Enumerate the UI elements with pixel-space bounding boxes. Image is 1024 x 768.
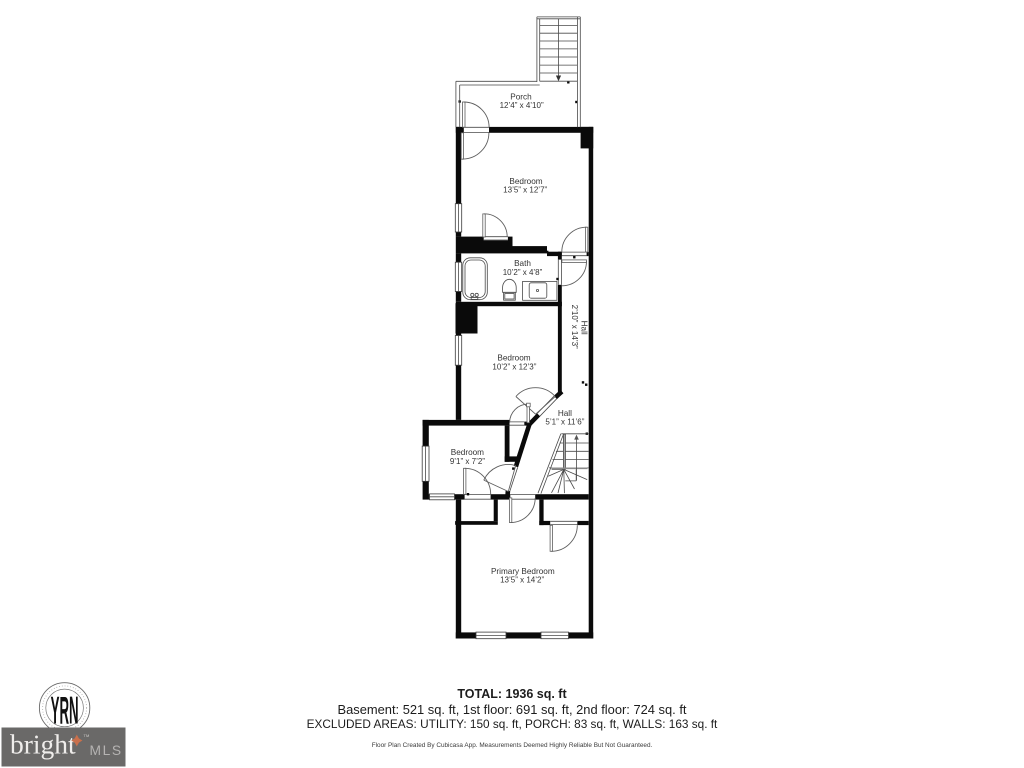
svg-text:bright: bright — [10, 729, 76, 760]
svg-text:MLS: MLS — [90, 743, 123, 758]
svg-text:Basement: 521 sq. ft, 1st floo: Basement: 521 sq. ft, 1st floor: 691 sq.… — [338, 702, 687, 717]
svg-text:TOTAL: 1936 sq. ft: TOTAL: 1936 sq. ft — [457, 687, 567, 701]
svg-text:Floor Plan Created By Cubicasa: Floor Plan Created By Cubicasa App. Meas… — [372, 742, 653, 749]
svg-text:13’5” x 14’2”: 13’5” x 14’2” — [500, 575, 544, 584]
svg-text:9’1” x 7’2”: 9’1” x 7’2” — [450, 457, 485, 466]
svg-text:Hall: Hall — [579, 321, 588, 335]
svg-text:TM: TM — [84, 733, 90, 738]
svg-text:Bedroom: Bedroom — [497, 354, 530, 363]
svg-text:Bedroom: Bedroom — [451, 448, 484, 457]
svg-text:YRN: YRN — [51, 690, 79, 733]
svg-text:13’5” x 12’7”: 13’5” x 12’7” — [503, 186, 547, 195]
svg-text:Bath: Bath — [514, 259, 531, 268]
svg-text:10’2” x 12’3”: 10’2” x 12’3” — [492, 362, 536, 371]
svg-text:5’1” x 11’6”: 5’1” x 11’6” — [545, 418, 584, 427]
svg-text:EXCLUDED AREAS: UTILITY: 150 s: EXCLUDED AREAS: UTILITY: 150 sq. ft, POR… — [307, 717, 718, 731]
svg-text:12’4” x 4’10”: 12’4” x 4’10” — [500, 101, 544, 110]
svg-text:10’2” x 4’8”: 10’2” x 4’8” — [503, 268, 543, 277]
svg-text:2’10” x 14’3”: 2’10” x 14’3” — [570, 305, 579, 349]
